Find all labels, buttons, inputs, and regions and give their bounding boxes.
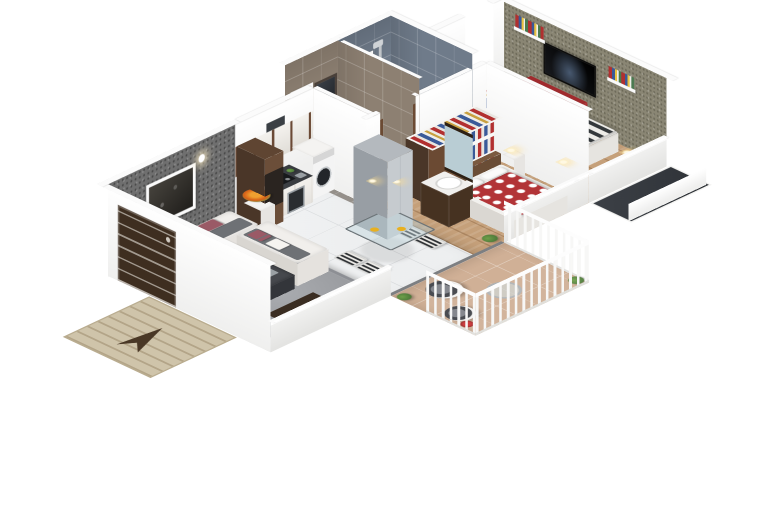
table-item-yellow	[368, 227, 381, 233]
floorplan-render-canvas	[0, 0, 760, 532]
door-handle-icon	[166, 236, 170, 243]
entrance-door	[118, 205, 176, 308]
entrance-arrow-icon	[113, 323, 176, 354]
counter-planter	[285, 168, 296, 173]
wall-lamp-icon	[199, 153, 205, 164]
table-item-yellow	[395, 226, 408, 232]
